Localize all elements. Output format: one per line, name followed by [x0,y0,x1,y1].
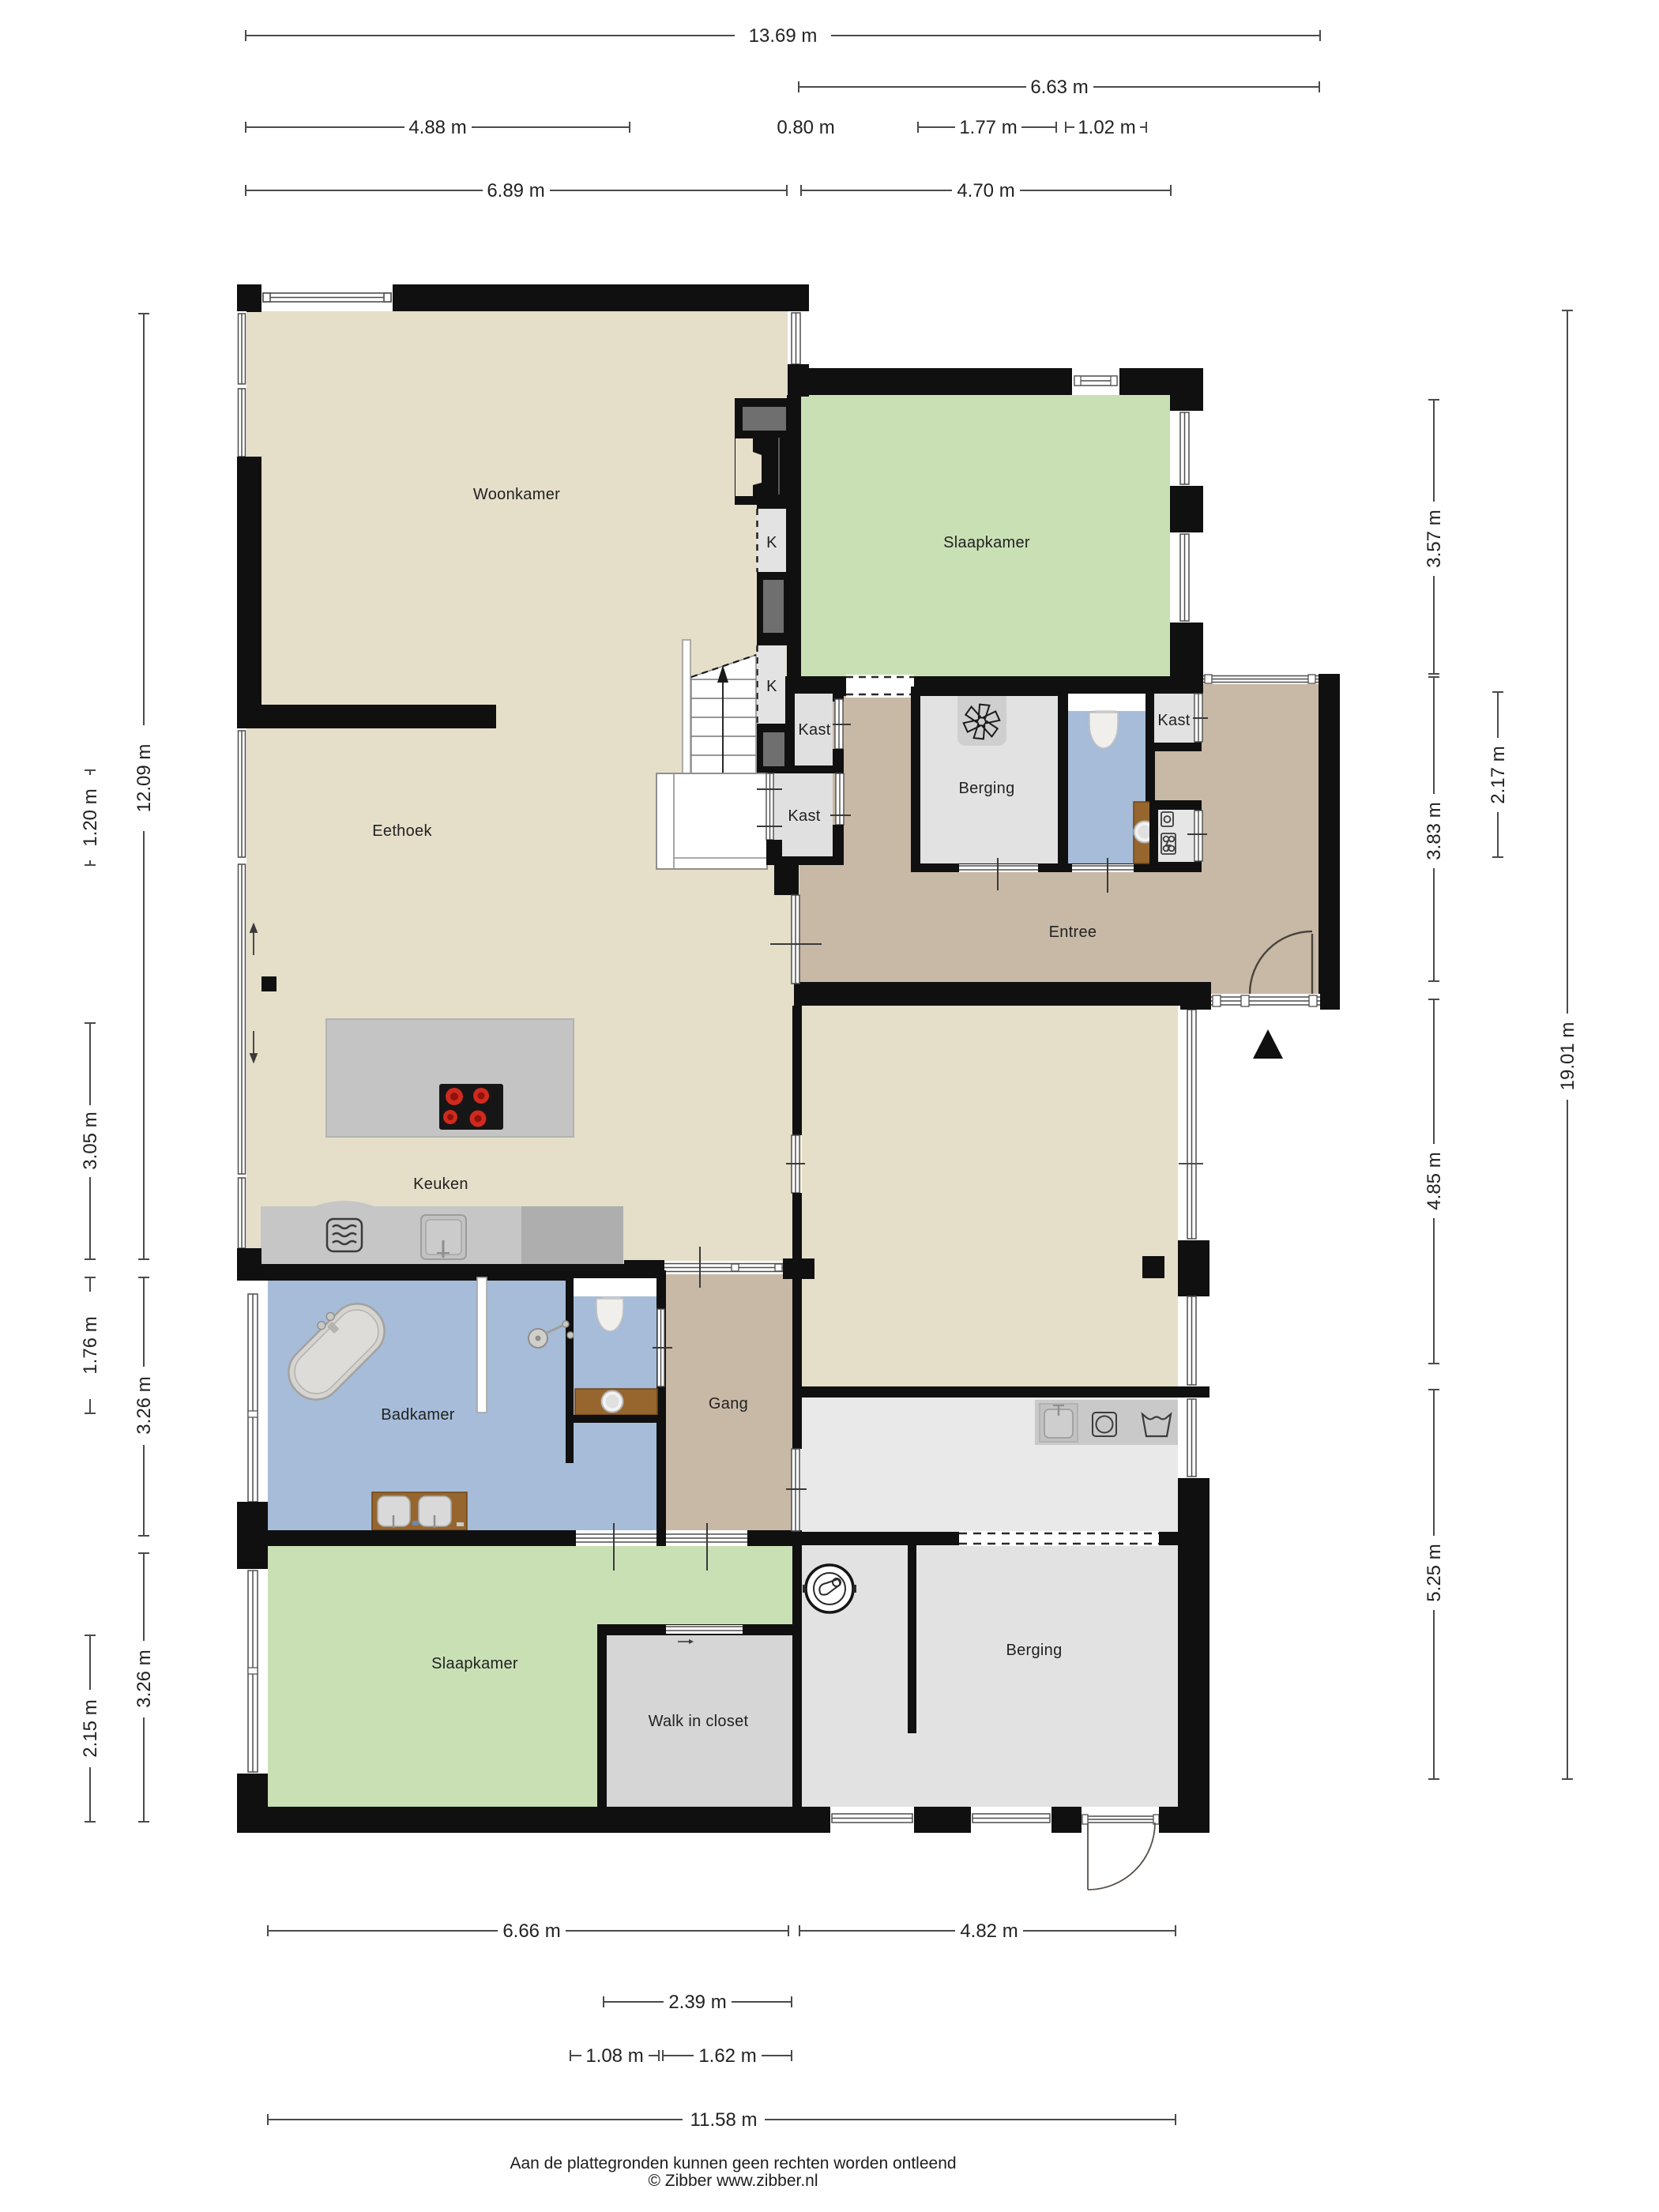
svg-text:4.88 m: 4.88 m [408,117,466,138]
svg-text:Kast: Kast [788,807,820,825]
svg-text:Kast: Kast [798,721,830,739]
svg-text:Badkamer: Badkamer [381,1406,455,1424]
svg-text:Entree: Entree [1049,924,1097,941]
svg-text:0.80 m: 0.80 m [777,117,834,138]
svg-text:Woonkamer: Woonkamer [473,486,560,503]
svg-text:6.63 m: 6.63 m [1030,77,1088,98]
svg-text:4.85 m: 4.85 m [1424,1152,1445,1209]
svg-text:Keuken: Keuken [413,1176,468,1193]
svg-text:6.89 m: 6.89 m [487,180,544,201]
svg-text:3.05 m: 3.05 m [80,1112,101,1169]
svg-text:13.69 m: 13.69 m [749,25,818,47]
svg-text:K: K [766,678,777,695]
svg-text:1.77 m: 1.77 m [959,117,1017,138]
svg-text:12.09 m: 12.09 m [134,744,155,813]
svg-text:Slaapkamer: Slaapkamer [943,534,1030,551]
svg-text:3.57 m: 3.57 m [1424,510,1445,567]
svg-text:4.70 m: 4.70 m [957,180,1014,201]
svg-text:Gang: Gang [709,1395,748,1413]
svg-text:Kast: Kast [1157,712,1190,729]
svg-text:Berging: Berging [1006,1642,1062,1659]
svg-text:2.17 m: 2.17 m [1488,746,1509,803]
svg-text:1.20 m: 1.20 m [80,788,101,846]
svg-text:Walk in closet: Walk in closet [649,1713,749,1730]
svg-text:© Zibber www.zibber.nl: © Zibber www.zibber.nl [648,2172,818,2190]
svg-text:3.83 m: 3.83 m [1424,802,1445,860]
svg-text:Aan de plattegronden kunnen ge: Aan de plattegronden kunnen geen rechten… [510,2154,956,2172]
svg-text:11.58 m: 11.58 m [690,2109,758,2131]
svg-text:19.01 m: 19.01 m [1557,1022,1578,1091]
svg-text:3.26 m: 3.26 m [134,1650,155,1707]
svg-text:1.08 m: 1.08 m [585,2045,643,2067]
svg-text:2.39 m: 2.39 m [668,1992,726,2013]
svg-text:1.02 m: 1.02 m [1078,117,1135,138]
svg-text:Eethoek: Eethoek [372,822,432,840]
svg-text:Berging: Berging [958,780,1014,797]
svg-text:K: K [766,534,777,551]
svg-text:5.25 m: 5.25 m [1424,1544,1445,1601]
svg-text:4.82 m: 4.82 m [960,1920,1018,1942]
svg-text:Slaapkamer: Slaapkamer [431,1655,518,1672]
svg-text:1.62 m: 1.62 m [698,2045,756,2067]
svg-text:3.26 m: 3.26 m [134,1376,155,1434]
svg-text:1.76 m: 1.76 m [80,1316,101,1374]
svg-text:2.15 m: 2.15 m [80,1699,101,1757]
svg-text:6.66 m: 6.66 m [502,1920,560,1942]
